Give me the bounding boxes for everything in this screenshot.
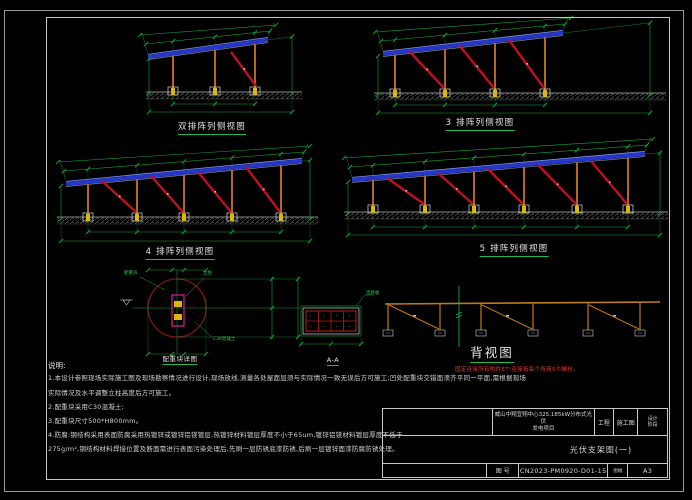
note-line: 4.防腐:钢结构采用表面防腐采用热镀锌或镀锌铝镁镀层,热镀锌材料镀层厚度不小于6… xyxy=(48,432,403,439)
back-view-label: 背视图 xyxy=(470,347,514,363)
back-view-warning-note: 固定连接所有构件5T!连接板每个所用5个螺栓。 xyxy=(455,368,579,374)
title-block: 威山中翔宜翔中心325.185kW分布式光伏 发电项目 工程 施工图 设计 阶段… xyxy=(382,408,668,478)
project-name-line1: 威山中翔宜翔中心325.185kW分布式光伏 xyxy=(493,412,593,426)
back-view xyxy=(383,286,660,347)
project-name-line2: 发电项目 xyxy=(532,426,554,433)
detail-annotation: 配重块 xyxy=(124,272,138,277)
note-line: 2.配重块采用C30混凝土; xyxy=(48,404,124,411)
project-suffix: 工程 xyxy=(594,409,614,435)
stage-cell: 施工图 xyxy=(613,409,637,435)
side-view-3 xyxy=(56,144,318,243)
drawing-number: CN2023-PM0920-D01-15 xyxy=(518,464,607,477)
drawing-title: 光伏支架图(一) xyxy=(570,444,632,455)
phase-bottom: 阶段 xyxy=(648,422,658,428)
title-block-empty-cell xyxy=(383,409,492,435)
side-view-2 xyxy=(373,16,666,115)
detail-annotation: 立柱 xyxy=(203,272,212,277)
sheet-size-label: 图幅 xyxy=(607,464,627,477)
detail-annotation: C30混凝土 xyxy=(213,338,235,343)
counterweight-detail xyxy=(120,268,300,356)
drawing-sheet: 双排阵列侧视图 3 排阵列侧视图 4 排阵列侧视图 5 排阵列侧视图 配重块详图… xyxy=(0,0,692,500)
note-line: 1.本设计参照现场实际施工图及现场勘察情况进行设计,现场放线,测量各处屋面层须与… xyxy=(48,375,526,382)
phase-cell: 设计 阶段 xyxy=(637,409,667,435)
side-view-4 xyxy=(342,137,668,237)
note-line: 实际情况及水平调整立柱高度后方可施工。 xyxy=(48,390,175,397)
side-view-1 xyxy=(138,23,302,114)
view-label-2row: 双排阵列侧视图 xyxy=(178,123,246,135)
sheet-size-value: A3 xyxy=(627,464,667,477)
project-name: 威山中翔宜翔中心325.185kW分布式光伏 发电项目 xyxy=(492,409,593,435)
note-line: 275g/m²,钢结构材料焊接位置及断面需进行表面污染处理后,先刷一层防锈底漆防… xyxy=(48,446,399,453)
title-block-empty-cell xyxy=(383,464,486,477)
view-label-3row: 3 排阵列侧视图 xyxy=(446,119,515,131)
drawing-no-label: 图 号 xyxy=(486,464,518,477)
section-aa xyxy=(299,295,373,346)
view-label-5row: 5 排阵列侧视图 xyxy=(480,245,549,257)
counterweight-detail-label: 配重块详图 xyxy=(163,356,198,365)
note-line: 3.配重块尺寸500*H800mm。 xyxy=(48,418,142,425)
view-label-4row: 4 排阵列侧视图 xyxy=(146,248,215,260)
section-callout: 连接板 xyxy=(366,292,380,297)
notes-heading: 说明: xyxy=(48,362,66,370)
section-aa-label: A-A xyxy=(327,357,339,366)
